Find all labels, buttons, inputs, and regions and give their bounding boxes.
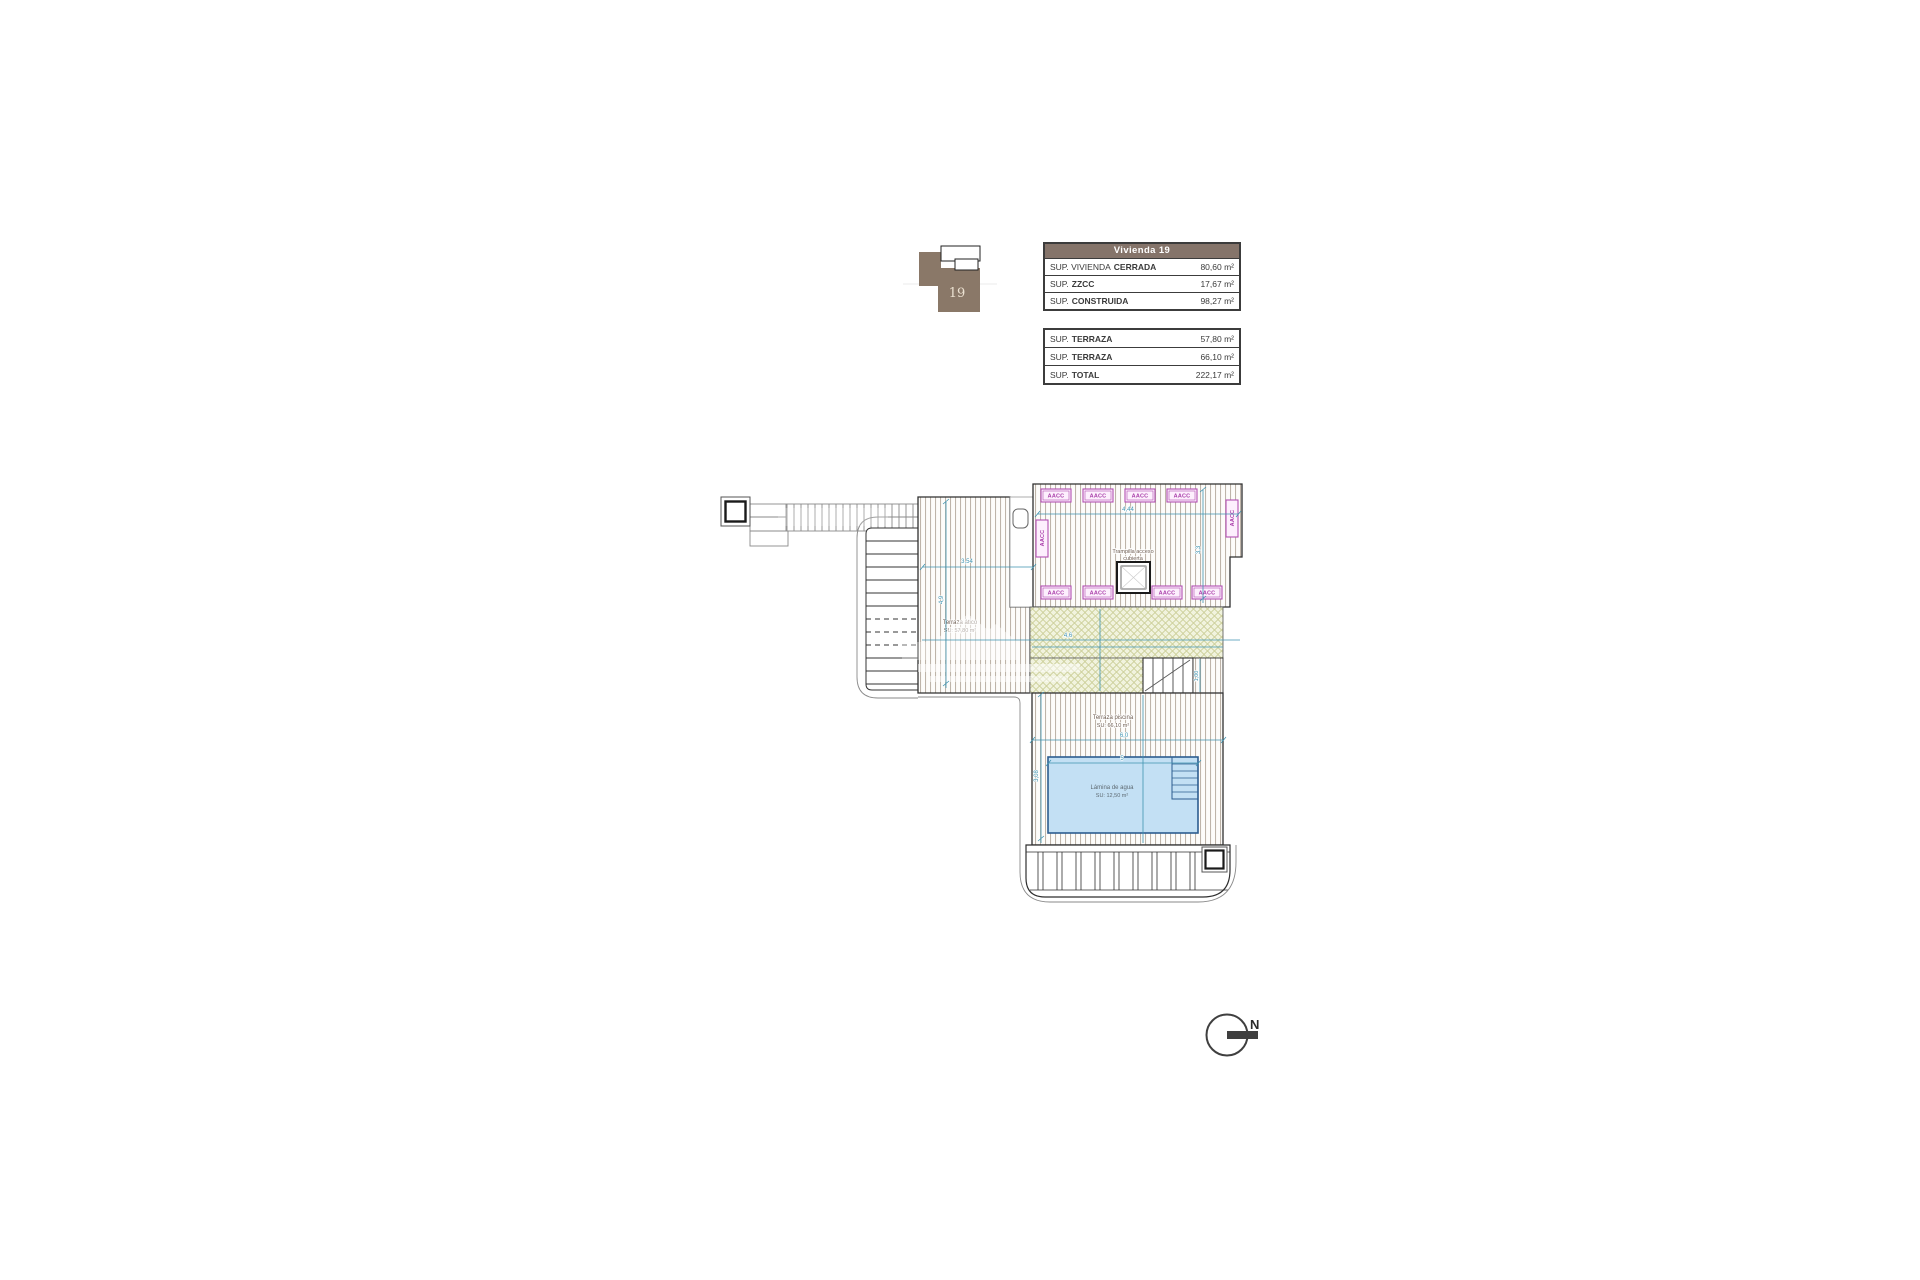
aacc-unit: AACC [1083,586,1113,599]
piscina-area-label: SU: 66,10 m² [1097,723,1130,729]
aacc-unit-label: AACC [1048,494,1065,500]
swimming-pool: Lámina de agua SU: 12,50 m² [1048,757,1198,833]
terrace-stairs [1143,658,1223,693]
row-label-prefix: SUP. [1050,334,1069,344]
louver-screen [857,517,926,698]
vent-icon [1013,509,1028,528]
watermark-mark [902,642,928,660]
table-row: SUP.TOTAL 222,17 m² [1045,365,1239,383]
aacc-unit: AACC [1167,489,1197,502]
row-label: SUP. VIVIENDACERRADA [1050,262,1156,272]
table-row: SUP.CONSTRUIDA 98,27 m² [1045,292,1239,309]
green-zone-upper [1030,607,1223,658]
watermark-faint-bar [778,508,888,526]
aacc-unit: AACC [1192,586,1222,599]
aacc-unit-label: AACC [1174,494,1191,500]
aacc-unit: AACC [1041,586,1071,599]
dim-label: 6,0 [1120,733,1129,739]
row-label-prefix: SUP. VIVIENDA [1050,262,1111,272]
aacc-unit: AACC [1083,489,1113,502]
aacc-unit-label: AACC [1230,510,1236,527]
louver-panel [866,528,918,690]
aacc-unit-label: AACC [1090,591,1107,597]
pool-area-label: SU: 12,50 m² [1096,793,1129,799]
row-label: SUP.TOTAL [1050,370,1099,380]
row-label-name: CERRADA [1114,262,1157,272]
aacc-unit-label: AACC [1159,591,1176,597]
north-arrow: N [1195,1005,1285,1065]
aacc-unit-label: AACC [1199,591,1216,597]
key-plan: 19 [900,240,1000,320]
dim-label: 4,44 [1122,507,1134,513]
terraza-piscina-deck: Terraza piscina SU: 66,10 m² Lámina de a… [1032,693,1223,845]
row-label-prefix: SUP. [1050,352,1069,362]
row-label-prefix: SUP. [1050,370,1069,380]
row-label: SUP.TERRAZA [1050,334,1112,344]
green-zone-lower [1030,658,1143,693]
aacc-unit-label: AACC [1132,494,1149,500]
aacc-unit: AACC [1152,586,1182,599]
key-plan-unit-number: 19 [949,286,966,301]
terrace-table: SUP.TERRAZA 57,80 m² SUP.TERRAZA 66,10 m… [1043,328,1241,385]
hatch-label-line1: Trampilla acceso [1112,549,1153,555]
row-label-name: ZZCC [1072,279,1095,289]
table-row: SUP.TERRAZA 57,80 m² [1045,330,1239,347]
row-value: 17,67 m² [1200,279,1234,289]
dim-label: 3,54 [961,559,973,565]
row-label: SUP.TERRAZA [1050,352,1112,362]
area-table: Vivienda 19 SUP. VIVIENDACERRADA 80,60 m… [1043,242,1241,311]
watermark-text-bar [918,664,1080,672]
compass-needle [1227,1031,1258,1039]
aacc-unit-label: AACC [1040,530,1046,547]
row-label: SUP.CONSTRUIDA [1050,296,1128,306]
aacc-unit-label: AACC [1090,494,1107,500]
row-label-prefix: SUP. [1050,279,1069,289]
north-label: N [1250,1017,1259,1032]
aacc-unit-label: AACC [1048,591,1065,597]
row-value: 80,60 m² [1200,262,1234,272]
dim-label: 3,3 [1196,545,1202,554]
aacc-deck: AACC AACC AACC AACC AACC [1033,484,1242,607]
row-value: 98,27 m² [1200,296,1234,306]
aacc-unit: AACC [1041,489,1071,502]
area-table-title: Vivienda 19 [1045,244,1239,258]
row-label-name: TOTAL [1072,370,1100,380]
dim-label: 1,00 [1194,671,1200,682]
dim-label: 4,6 [1064,633,1073,639]
chimney-right-inner [1206,851,1224,869]
chimney-left-inner [726,502,746,522]
row-label-prefix: SUP. [1050,296,1069,306]
row-value: 66,10 m² [1200,352,1234,362]
piscina-label: Terraza piscina [1093,715,1134,721]
pool-label: Lámina de agua [1090,785,1134,791]
dim-label: 4,9 [939,595,945,604]
watermark-text-bar [930,676,1068,682]
table-row: SUP.ZZCC 17,67 m² [1045,275,1239,292]
row-value: 222,17 m² [1196,370,1234,380]
drawing-sheet: 19 Vivienda 19 SUP. VIVIENDACERRADA 80,6… [0,0,1920,1280]
table-row: SUP. VIVIENDACERRADA 80,60 m² [1045,258,1239,275]
row-label-name: TERRAZA [1072,352,1113,362]
row-label-name: CONSTRUIDA [1072,296,1129,306]
row-label-name: TERRAZA [1072,334,1113,344]
walkway-step [750,531,788,546]
key-plan-roof-outline-2 [955,259,978,270]
dim-label: 3,08 [1034,770,1040,782]
floor-plan: Terraza ático SU: 57,80 m² AACC AACC AAC… [700,470,1260,920]
row-value: 57,80 m² [1200,334,1234,344]
row-label: SUP.ZZCC [1050,279,1094,289]
aacc-unit: AACC [1036,520,1048,557]
table-row: SUP.TERRAZA 66,10 m² [1045,347,1239,365]
aacc-unit: AACC [1226,500,1238,537]
terraza-atico-deck: Terraza ático SU: 57,80 m² [918,497,1033,693]
aacc-unit: AACC [1125,489,1155,502]
